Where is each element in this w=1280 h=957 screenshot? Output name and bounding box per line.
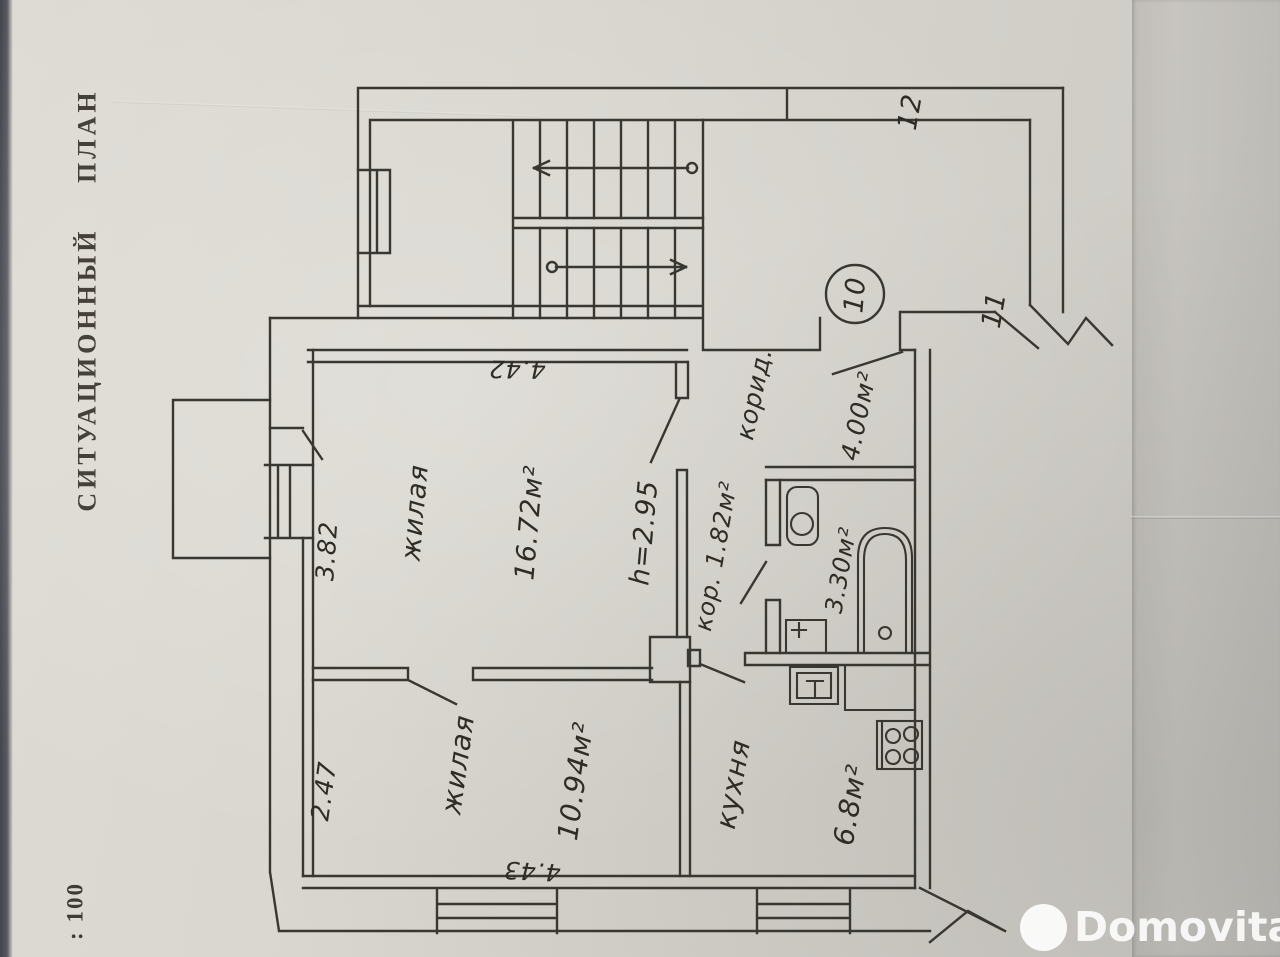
room-name: корид. (727, 344, 781, 443)
room-name: кухня (705, 736, 760, 832)
room-area: 16.72м² (506, 463, 554, 581)
washbasin-icon (786, 620, 826, 653)
toilet-icon (787, 487, 818, 545)
domovita-wordmark: Domovita (1074, 903, 1280, 951)
kitchen-counter (845, 665, 915, 710)
window-left (265, 465, 313, 538)
scanned-floor-plan-page: { "document": { "title": "СИТУАЦИОННЫЙ П… (0, 0, 1280, 957)
wall-break-mark (1030, 305, 1112, 345)
bathroom-door-leaf (741, 562, 766, 603)
dimension-top: 4.42 (488, 351, 546, 386)
bathtub-icon (858, 528, 912, 652)
stairwell-window (358, 170, 390, 253)
room-name: жилая (430, 703, 486, 827)
stairwell (270, 88, 1063, 350)
apartment-number: 10 (835, 275, 876, 315)
stove-flue (650, 637, 700, 682)
porch (173, 400, 270, 558)
scale-label: : 100 (60, 882, 93, 940)
dimension-left-upper: 3.82 (307, 520, 347, 582)
stairs-up-arrow (534, 161, 688, 175)
wall-break-mark-bottom (920, 888, 1005, 942)
domovita-logo-icon (1020, 904, 1067, 951)
dimension-bottom: 4.43 (502, 852, 561, 889)
kitchen-sink-icon (790, 667, 838, 704)
room-height: h=2.95 (621, 473, 669, 591)
room-name: жилая (391, 453, 439, 571)
room-area: 6.8м² (823, 757, 878, 853)
window-bottom-left (437, 890, 557, 933)
room-area: 4.00м² (831, 366, 885, 465)
window-bottom-right (757, 890, 850, 933)
marker-11: 11 (973, 289, 1017, 331)
room-area: 10.94м² (548, 719, 604, 843)
kitchen-door-leaf (700, 664, 744, 682)
marker-12: 12 (889, 91, 933, 133)
page-title: СИТУАЦИОННЫЙ ПЛАН (70, 88, 107, 511)
